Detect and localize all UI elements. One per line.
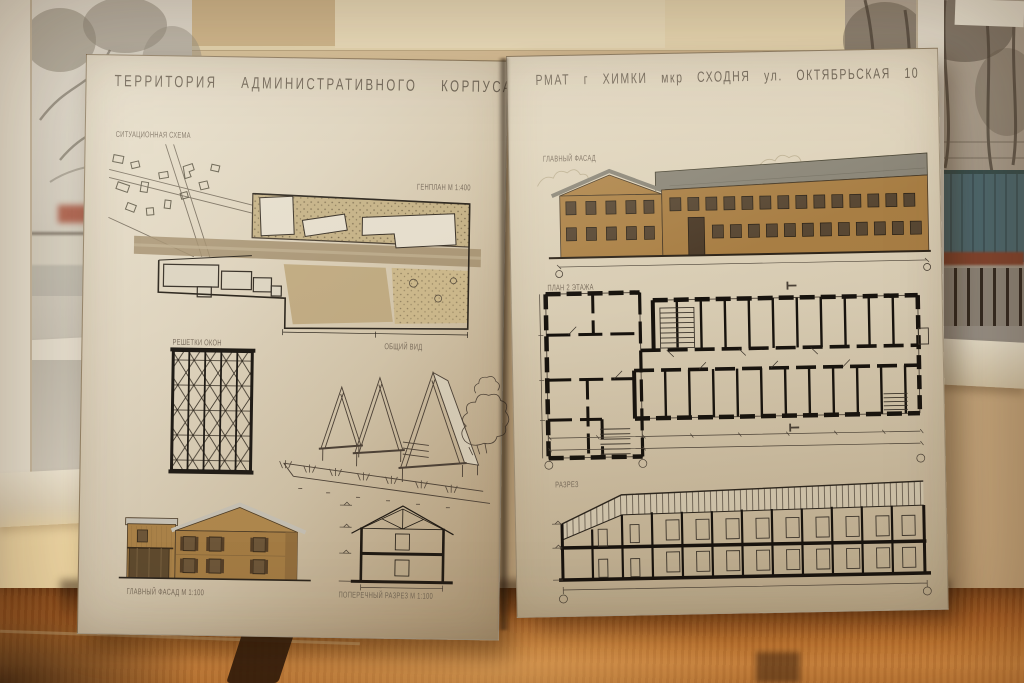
cross-section-label: ПОПЕРЕЧНЫЙ РАЗРЕЗ М 1:100 — [338, 590, 433, 601]
a-frame-perspective-drawing — [268, 348, 498, 512]
main-facade-drawing — [117, 496, 316, 589]
easel-leg-shadow — [756, 652, 800, 683]
right-drawing-board: РМАТ г ХИМКИ мкр СХОДНЯ ул. ОКТЯБРЬСКАЯ … — [506, 48, 949, 618]
window-grille-drawing — [168, 347, 255, 474]
left-window-frame — [0, 0, 32, 522]
genplan-garden-lower — [391, 268, 469, 325]
long-section-drawing — [551, 469, 937, 606]
wall-tan-panel — [185, 0, 335, 46]
grille-label: РЕШЕТКИ ОКОН — [172, 337, 221, 347]
plan-dimensions — [537, 279, 924, 469]
right-window-top-frame — [955, 0, 1024, 27]
perspective-lines — [283, 370, 510, 504]
photo-of-architectural-boards: ТЕРРИТОРИЯ АДМИНИСТРАТИВНОГО КОРПУСА СИТ… — [0, 0, 1024, 683]
left-drawing-board: ТЕРРИТОРИЯ АДМИНИСТРАТИВНОГО КОРПУСА СИТ… — [77, 54, 508, 641]
genplan-drawing — [133, 184, 482, 341]
floor-plan-drawing — [537, 273, 935, 473]
section-lines — [351, 505, 454, 583]
left-board-title: ТЕРРИТОРИЯ АДМИНИСТРАТИВНОГО КОРПУСА — [114, 73, 489, 96]
situational-scheme-label: СИТУАЦИОННАЯ СХЕМА — [116, 129, 191, 140]
right-board-title: РМАТ г ХИМКИ мкр СХОДНЯ ул. ОКТЯБРЬСКАЯ … — [527, 65, 927, 89]
section-marks — [339, 502, 444, 592]
cross-section-drawing — [331, 497, 474, 591]
wall-light-panel — [335, 0, 665, 48]
facade-label: ГЛАВНЫЙ ФАСАД М 1:100 — [126, 587, 204, 598]
plan-interior-walls — [546, 287, 921, 458]
long-elevation-drawing — [529, 143, 933, 283]
genplan-plaza — [283, 264, 394, 326]
board-gap-shadow — [498, 58, 510, 630]
